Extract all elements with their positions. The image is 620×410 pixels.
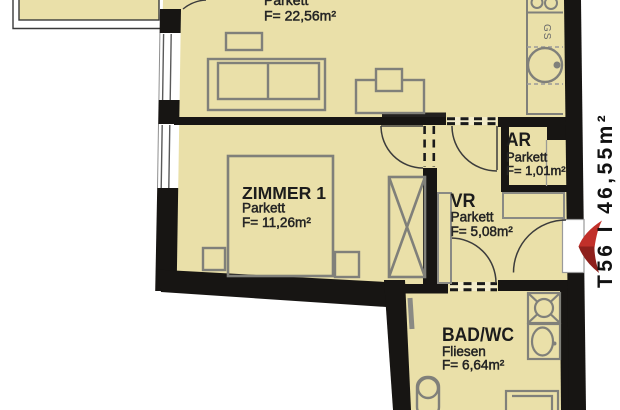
svg-text:F= 5,08m²: F= 5,08m² <box>451 224 514 239</box>
svg-text:F= 11,26m²: F= 11,26m² <box>242 215 311 230</box>
svg-text:F= 6,64m²: F= 6,64m² <box>442 358 505 373</box>
svg-text:AR: AR <box>506 129 531 151</box>
svg-text:GS: GS <box>541 24 552 40</box>
svg-text:BAD/WC: BAD/WC <box>442 324 514 346</box>
svg-text:Parkett: Parkett <box>451 210 494 225</box>
svg-text:Parkett: Parkett <box>242 201 285 216</box>
svg-text:F= 1,01m²: F= 1,01m² <box>506 163 566 178</box>
svg-text:F= 22,56m²: F= 22,56m² <box>264 8 336 24</box>
svg-text:T56 I 46,55m²: T56 I 46,55m² <box>594 112 617 288</box>
